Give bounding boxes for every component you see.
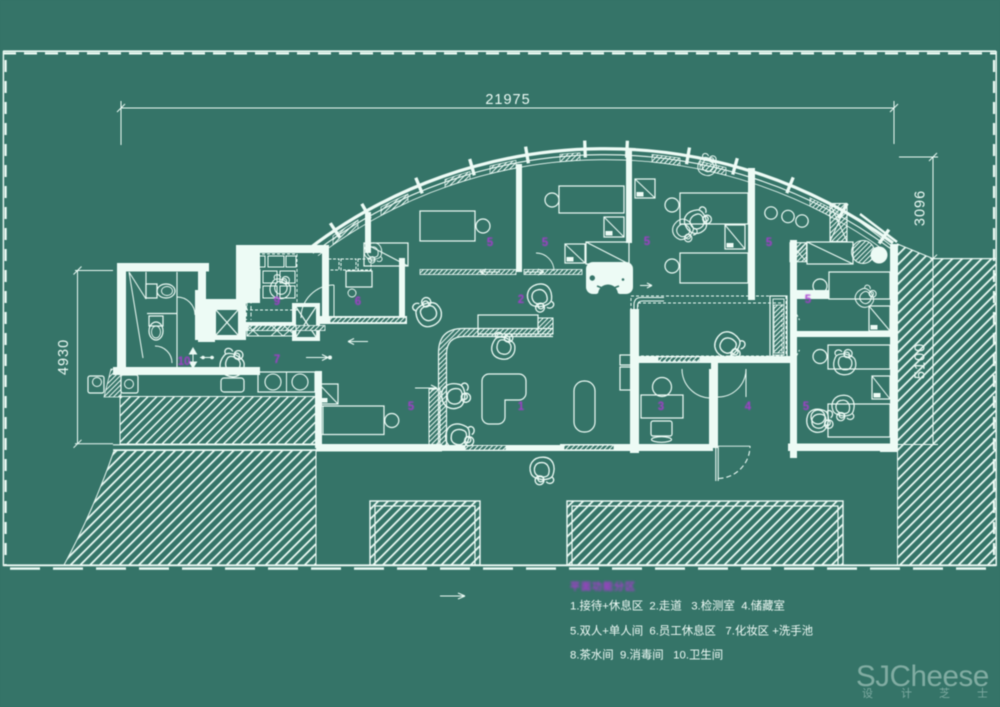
svg-text:5.双人+单人间 6.员工休息区 7.化妆区 +洗手池: 5.双人+单人间 6.员工休息区 7.化妆区 +洗手池 — [570, 624, 813, 638]
svg-text:士: 士 — [977, 687, 988, 700]
svg-text:5: 5 — [542, 237, 549, 249]
svg-text:10: 10 — [178, 356, 191, 368]
svg-text:5: 5 — [644, 236, 651, 248]
svg-text:5: 5 — [487, 237, 494, 249]
svg-text:5: 5 — [803, 401, 810, 413]
svg-text:1: 1 — [518, 401, 525, 413]
svg-text:1.接待+休息区 2.走道 3.检测室 4.储藏室: 1.接待+休息区 2.走道 3.检测室 4.储藏室 — [570, 599, 785, 613]
svg-text:设: 设 — [862, 687, 873, 700]
svg-text:计: 计 — [901, 687, 912, 700]
svg-text:芝: 芝 — [939, 687, 950, 700]
svg-text:6: 6 — [355, 296, 361, 308]
svg-text:7: 7 — [274, 354, 280, 366]
svg-text:3: 3 — [658, 401, 664, 413]
svg-text:5100: 5100 — [913, 343, 929, 379]
svg-text:4: 4 — [745, 401, 752, 413]
svg-text:平面功能分区: 平面功能分区 — [570, 580, 636, 593]
svg-text:5: 5 — [766, 237, 773, 249]
svg-text:21975: 21975 — [485, 92, 530, 108]
svg-text:4930: 4930 — [56, 339, 72, 375]
svg-text:5: 5 — [805, 294, 812, 306]
svg-text:SJCheese: SJCheese — [856, 660, 989, 693]
svg-text:8.茶水间 9.消毒间 10.卫生间: 8.茶水间 9.消毒间 10.卫生间 — [570, 648, 723, 662]
svg-text:5: 5 — [408, 401, 415, 413]
svg-text:3096: 3096 — [913, 190, 929, 226]
svg-text:9: 9 — [274, 296, 280, 308]
svg-text:2: 2 — [518, 294, 524, 306]
